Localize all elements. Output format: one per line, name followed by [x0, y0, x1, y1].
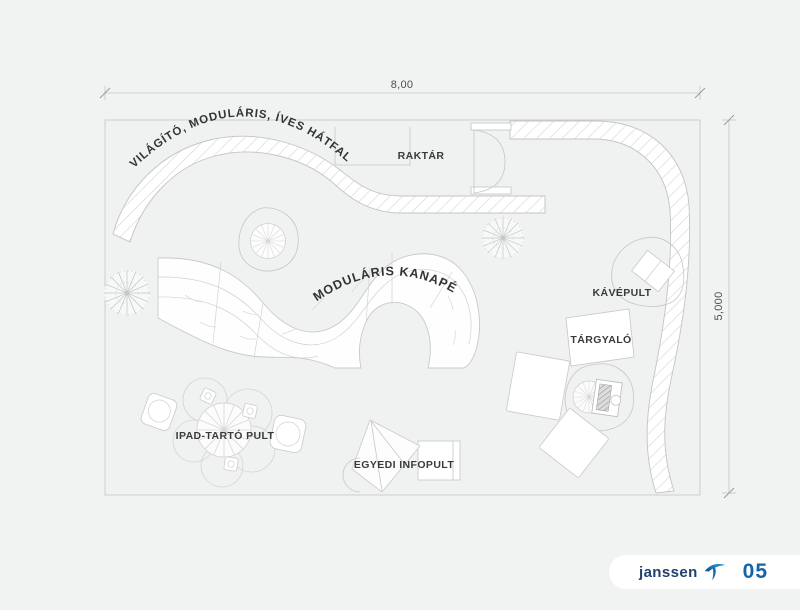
footer-brand-pill: janssen 05	[609, 555, 800, 589]
meeting-label: TÁRGYALÓ	[570, 333, 631, 346]
ipad-icon	[224, 457, 239, 472]
dimension-height: 5,000	[713, 115, 736, 498]
dimension-width-value: 8,00	[391, 79, 414, 91]
ipad-icon	[242, 403, 257, 418]
dimension-height-value: 5,000	[713, 291, 725, 320]
floor-plan-sheet: 8,00 5,000 RAKTÁR	[0, 0, 800, 610]
coffee-counter-label: KÁVÉPULT	[592, 286, 651, 299]
page-number: 05	[743, 560, 768, 584]
ipad-stand-label: IPAD-TARTÓ PULT	[176, 429, 275, 442]
meeting-table	[506, 352, 570, 420]
storage-label: RAKTÁR	[398, 149, 445, 162]
tree-icon	[482, 217, 525, 260]
info-desk-label: EGYEDI INFOPULT	[354, 459, 454, 471]
reception-desk	[592, 379, 623, 416]
lounge-chair	[269, 414, 307, 454]
dimension-width: 8,00	[100, 79, 705, 100]
janssen-logo-icon	[703, 559, 727, 585]
tree-icon	[104, 270, 150, 316]
floor-plan-drawing: 8,00 5,000 RAKTÁR	[0, 0, 800, 610]
brand-name: janssen	[639, 564, 698, 581]
